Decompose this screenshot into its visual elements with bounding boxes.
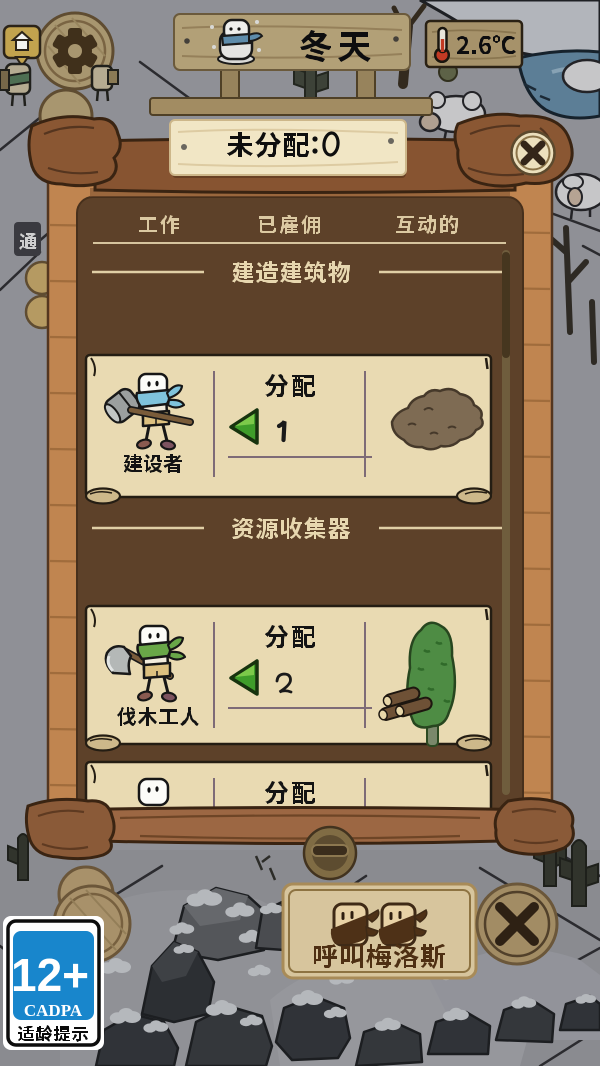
svg-text:CADPA: CADPA [24,1001,83,1020]
svg-text:12+: 12+ [11,949,89,1001]
